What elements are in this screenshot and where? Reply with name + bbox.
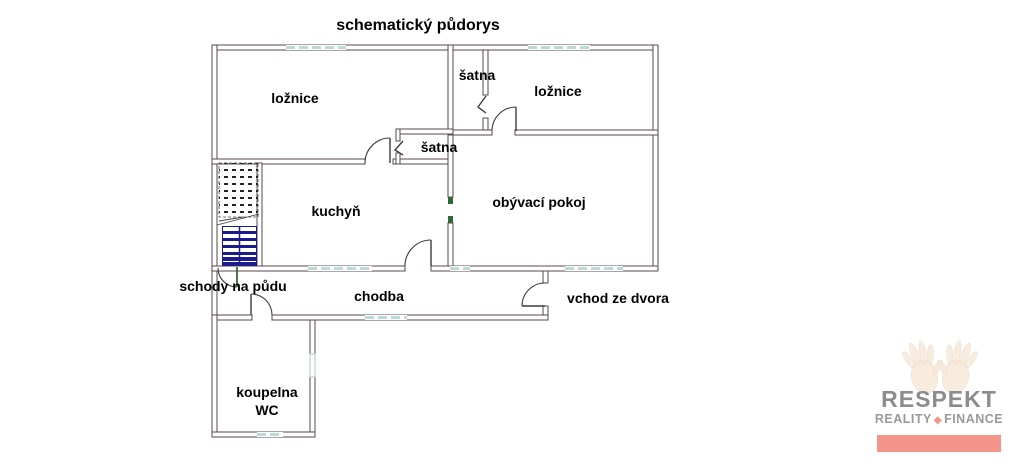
room-label-koupelna-wc: koupelna WC — [236, 383, 297, 419]
room-label-schody-na-pudu: schody na půdu — [179, 277, 286, 295]
page-title: schematický půdorys — [336, 17, 500, 35]
room-label-kuchyn: kuchyň — [311, 202, 360, 220]
room-label-loznice-left: ložnice — [271, 89, 318, 107]
logo-separator-diamond-icon: ◆ — [932, 415, 944, 426]
attic-stairs — [217, 163, 259, 266]
logo-tagline-finance: FINANCE — [944, 412, 1003, 426]
room-label-koupelna: koupelna — [236, 383, 297, 401]
logo-brand-text: RESPEKT — [876, 386, 1002, 413]
logo-accent-bar — [877, 435, 1001, 452]
room-label-satna-top: šatna — [459, 66, 496, 84]
room-label-obyvaci-pokoj: obývací pokoj — [492, 193, 585, 211]
room-label-satna-lower: šatna — [421, 138, 458, 156]
logo-tagline: REALITY◆FINANCE — [874, 412, 1004, 426]
room-label-chodba: chodba — [354, 287, 404, 305]
room-label-vchod-ze-dvora: vchod ze dvora — [567, 289, 669, 307]
room-label-loznice-right: ložnice — [534, 82, 581, 100]
floor-plan-page: schematický půdorys ložnice šatna ložnic… — [0, 0, 1024, 471]
logo-tagline-reality: REALITY — [875, 412, 932, 426]
agency-logo: RESPEKT REALITY◆FINANCE — [860, 320, 1020, 468]
room-label-wc: WC — [236, 401, 297, 419]
